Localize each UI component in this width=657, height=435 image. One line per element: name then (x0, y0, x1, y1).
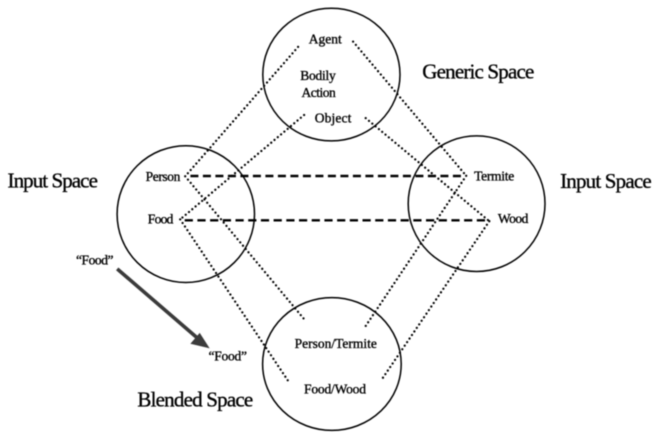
svg-text:Blended Space: Blended Space (137, 387, 253, 411)
svg-text:Bodily: Bodily (300, 68, 336, 83)
svg-text:Food/Wood: Food/Wood (304, 382, 366, 397)
svg-text:Input Space: Input Space (8, 168, 98, 192)
svg-text:Wood: Wood (498, 211, 529, 226)
svg-text:Agent: Agent (309, 31, 342, 46)
svg-text:Object: Object (315, 111, 352, 126)
svg-text:Food: Food (148, 212, 174, 227)
svg-text:“Food”: “Food” (209, 349, 248, 364)
svg-text:Action: Action (302, 85, 336, 100)
svg-text:Termite: Termite (474, 169, 514, 184)
svg-text:Input Space: Input Space (560, 169, 652, 193)
svg-text:Generic Space: Generic Space (422, 60, 534, 84)
svg-text:Person/Termite: Person/Termite (295, 336, 377, 351)
svg-text:Person: Person (146, 169, 181, 184)
svg-text:“Food”: “Food” (76, 252, 114, 267)
